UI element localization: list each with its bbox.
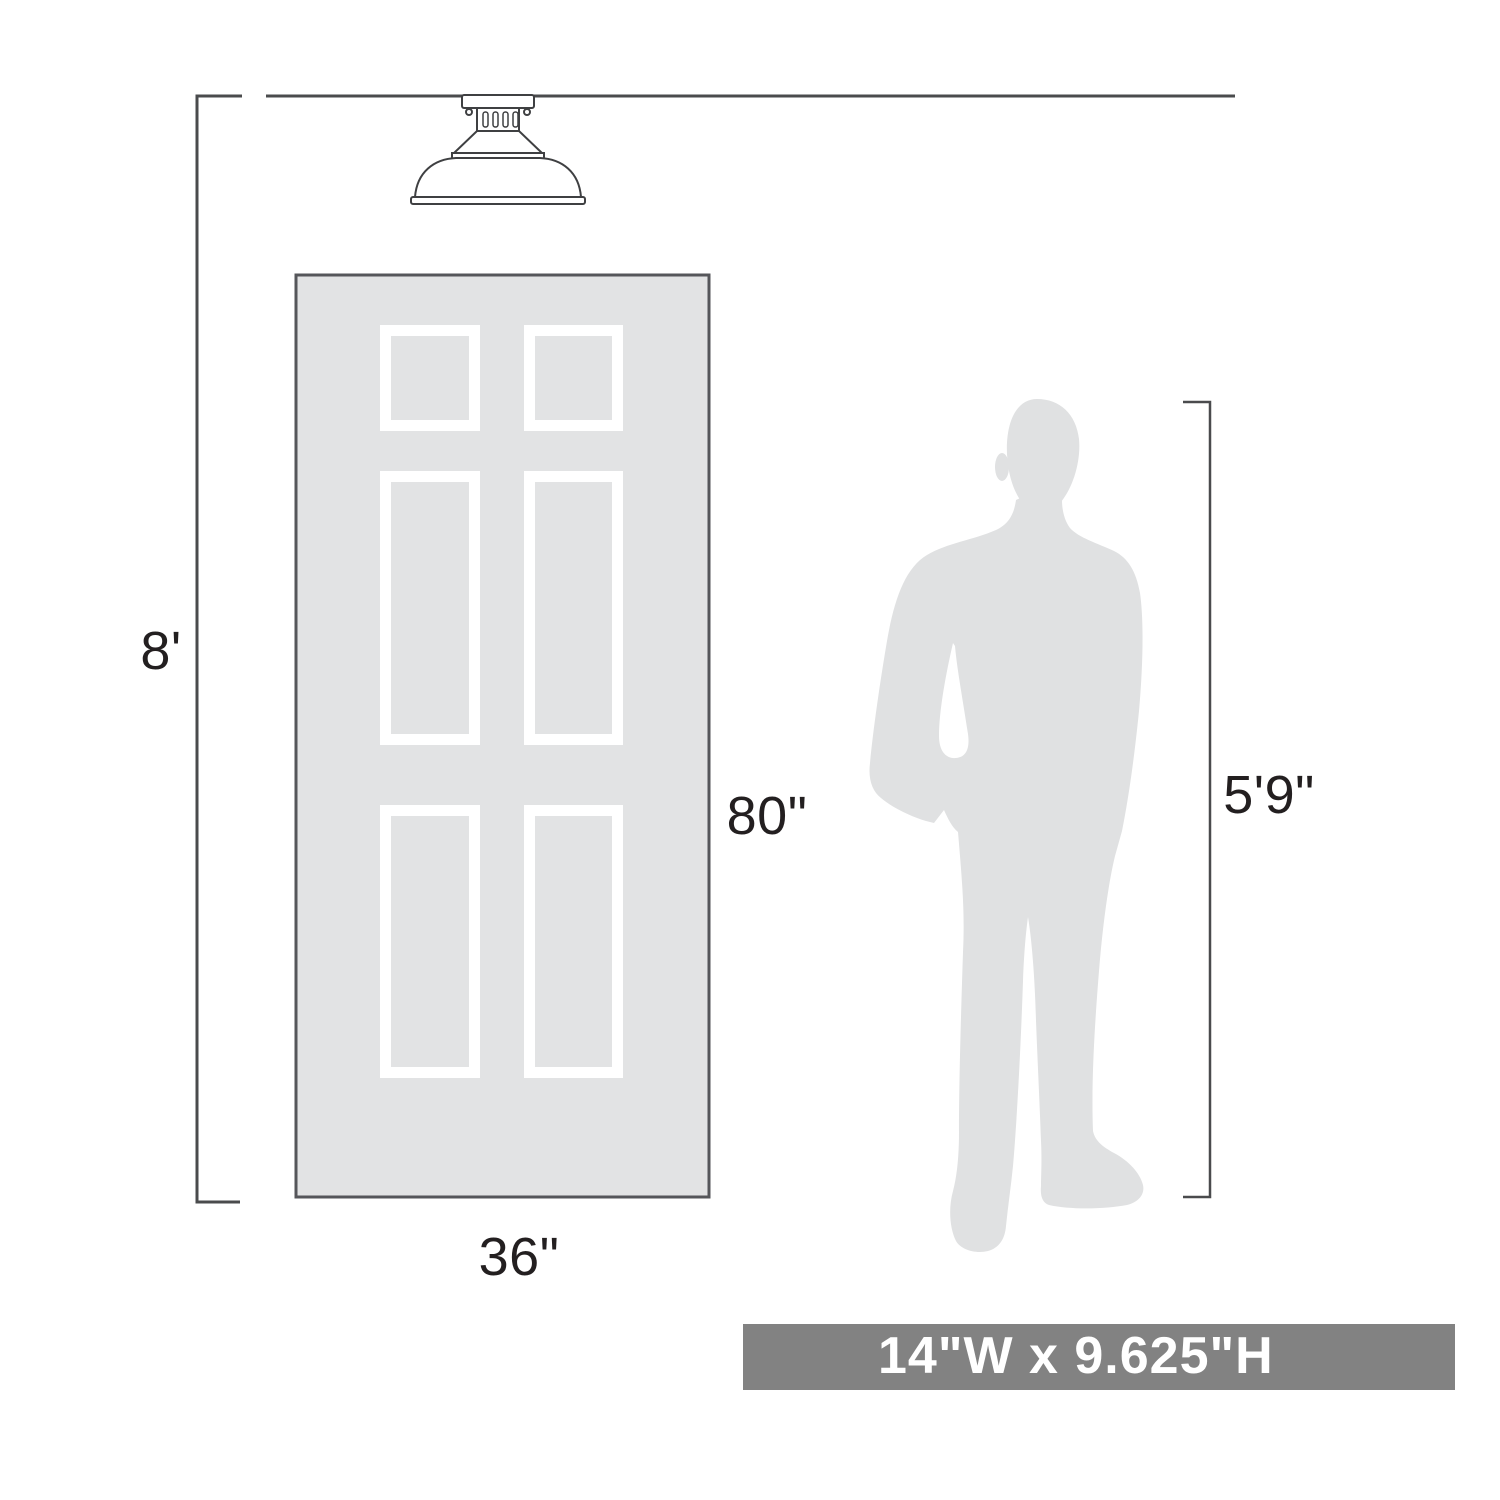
door-panel — [535, 816, 612, 1067]
door-panel — [391, 816, 469, 1067]
standing-man-silhouette — [869, 399, 1143, 1252]
fixture-rim — [411, 197, 585, 204]
fixture-canopy — [462, 95, 534, 108]
fixture-vent-slot — [503, 112, 508, 127]
fixture-dome-shade — [415, 158, 581, 197]
fixture-screw-left — [466, 109, 472, 115]
product-dimensions-banner: 14"W x 9.625"H — [743, 1324, 1455, 1390]
fixture-vent-slot — [513, 112, 518, 127]
diagram-linework — [0, 0, 1500, 1500]
door-panel — [391, 336, 469, 420]
door-height-label: 80" — [727, 785, 808, 847]
door-panel — [535, 482, 612, 734]
product-dimensions-text: 14"W x 9.625"H — [878, 1324, 1274, 1390]
ceiling-height-bracket — [197, 96, 242, 1202]
man-ear — [995, 453, 1009, 481]
fixture-screw-right — [524, 109, 530, 115]
man-body — [869, 495, 1143, 1252]
man-head — [1007, 399, 1079, 514]
fixture-cone — [454, 131, 542, 153]
door-panel — [535, 336, 612, 420]
fixture-vent-slot — [483, 112, 488, 127]
scale-diagram: 8' 80" 36" 5'9" 14"W x 9.625"H — [0, 0, 1500, 1500]
door-slab — [296, 275, 709, 1197]
person-height-label: 5'9" — [1223, 764, 1315, 826]
fixture-vent-slot — [493, 112, 498, 127]
ceiling-height-label: 8' — [140, 620, 181, 682]
door-width-label: 36" — [479, 1226, 560, 1288]
person-height-bracket — [1183, 402, 1210, 1197]
door-panel — [391, 482, 469, 734]
six-panel-door — [296, 275, 709, 1197]
ceiling-light-fixture — [411, 95, 585, 204]
